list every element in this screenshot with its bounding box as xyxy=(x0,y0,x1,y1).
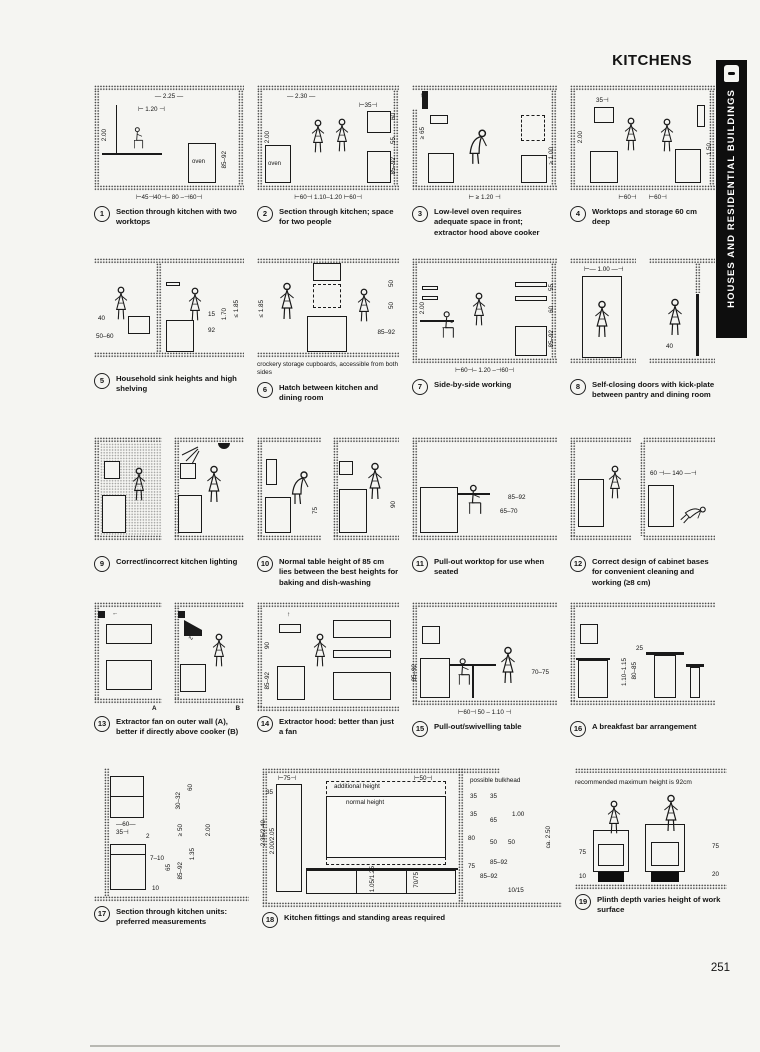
dim-label: 1.05/1.25 xyxy=(370,866,376,892)
figure-caption-row: 15 Pull-out/swivelling table xyxy=(412,721,557,737)
figure-number: 18 xyxy=(262,912,278,928)
base-cabinet xyxy=(110,844,146,890)
wall-cupboard xyxy=(594,107,614,123)
high-cupboard xyxy=(697,105,705,127)
diagram-17: —60— 35⊣ 2 7–10 10 30–32 60 ≥ 50 1.35 2.… xyxy=(94,768,249,902)
figure-number: 19 xyxy=(575,894,591,910)
wall-hatch xyxy=(94,607,100,699)
figure-10: 75 90 10 Normal table height of 85 cm li… xyxy=(257,437,399,588)
figure-caption-row: 1 Section through kitchen with two workt… xyxy=(94,206,244,228)
diagram-3: ↑ ≥ 65 ≥ 1.00 xyxy=(412,85,557,191)
up-arrow-icon: ↑ xyxy=(287,612,290,618)
wall-cupboard xyxy=(422,626,440,644)
figure-caption: Pull-out worktop for use when seated xyxy=(434,556,557,578)
person-figure xyxy=(277,280,297,324)
figure-number: 4 xyxy=(570,206,586,222)
figure-caption: Section through kitchen; space for two p… xyxy=(279,206,399,228)
dim-label: 65 xyxy=(166,864,172,871)
dim-label: 85–92 xyxy=(490,860,508,866)
figure-caption-row: 7 Side-by-side working xyxy=(412,379,557,395)
ceiling-hatch xyxy=(570,437,632,443)
dim-label: 75 xyxy=(712,844,719,850)
figure-caption: Correct design of cabinet bases for conv… xyxy=(592,556,715,588)
dim-label: 75 xyxy=(579,850,586,856)
dim-label: 35 xyxy=(470,812,477,818)
wall-hatch xyxy=(570,90,576,186)
floor-hatch xyxy=(94,896,249,902)
figure-caption-row: 12 Correct design of cabinet bases for c… xyxy=(570,556,715,588)
wall-hatch xyxy=(412,607,418,701)
figure-note: crockery storage cupboards, accessible f… xyxy=(257,361,399,378)
base-cabinet xyxy=(307,316,347,352)
dim-label: ≤ 1.85 xyxy=(234,300,240,317)
scan-artifact-line xyxy=(90,1045,560,1047)
wall-shelf xyxy=(422,296,438,300)
figure-caption-row: 5 Household sink heights and high shelvi… xyxy=(94,373,244,395)
person-figure xyxy=(622,115,640,155)
figure-caption-row: 16 A breakfast bar arrangement xyxy=(570,721,715,737)
cooker-cabinet xyxy=(180,664,206,692)
dim-label: 60 xyxy=(188,784,194,791)
figure-caption-row: 18 Kitchen fittings and standing areas r… xyxy=(262,912,562,928)
dim-label: 85–92 xyxy=(480,874,498,880)
figure-row-1: — 2.25 — ⊢ 1.20 ⊣ 2.00 oven 85–92 ⊢45⊣40… xyxy=(94,85,715,238)
fan-unit xyxy=(178,611,185,618)
bottom-dims: ⊢45⊣40⊣– 80 –⊣60⊣ xyxy=(94,194,244,202)
ceiling-hatch xyxy=(94,258,244,264)
diagram-13: ← A ∿ B xyxy=(94,602,244,712)
extractor-hood xyxy=(279,624,301,633)
figure-caption: Household sink heights and high shelving xyxy=(116,373,244,395)
shelf-line xyxy=(110,796,144,797)
dim-label: 10 xyxy=(579,874,586,880)
dim-label: 80–85 xyxy=(632,662,638,680)
figure-caption: Section through kitchen with two worktop… xyxy=(116,206,244,228)
annotation-label: normal height xyxy=(346,800,384,806)
extractor-hood-shape xyxy=(182,620,204,636)
plinth-recess xyxy=(598,872,624,882)
figure-caption: Normal table height of 85 cm lies betwee… xyxy=(279,556,399,588)
figure-number: 5 xyxy=(94,373,110,389)
dim-label: 35⊣ xyxy=(596,98,609,104)
dim-label: 60 xyxy=(391,113,397,120)
dim-label: 25 xyxy=(636,646,643,652)
figure-caption: Worktops and storage 60 cm deep xyxy=(592,206,715,228)
figure-6: ≤ 1.85 50 50 85–92 crockery storage cupb… xyxy=(257,258,399,403)
figure-caption-row: 3 Low-level oven requires adequate space… xyxy=(412,206,557,238)
floor-hatch xyxy=(257,185,399,191)
dim-label: —60— xyxy=(116,822,136,828)
dim-label: 1.10–1.15 xyxy=(622,658,628,686)
figure-number: 8 xyxy=(570,379,586,395)
dim-label: 85–92 xyxy=(377,330,395,336)
figure-18: ⊢75⊣ ⊢50⊣ 35 2.35/2.40 2.00/2.05 additio… xyxy=(262,768,562,928)
base-cabinet xyxy=(367,151,391,183)
dim-label: 35 xyxy=(490,794,497,800)
figure-number: 11 xyxy=(412,556,428,572)
person-figure-bending xyxy=(464,125,490,167)
person-figure xyxy=(309,119,327,155)
wall-hatch xyxy=(570,607,576,701)
dim-label: 75 xyxy=(468,864,475,870)
ceiling-hatch xyxy=(412,258,557,264)
wall-hatch xyxy=(412,442,418,536)
dim-label: 85–92 xyxy=(508,495,526,501)
figure-note: recommended maximum height is 92cm xyxy=(575,779,727,788)
figure-11: 85–92 65–70 11 Pull-out worktop for use … xyxy=(412,437,557,578)
figure-number: 10 xyxy=(257,556,273,572)
wall-hatch xyxy=(94,90,100,186)
base-cabinet xyxy=(102,495,126,533)
bar-unit xyxy=(654,655,676,698)
diagram-18: ⊢75⊣ ⊢50⊣ 35 2.35/2.40 2.00/2.05 additio… xyxy=(262,768,562,908)
ceiling-hatch xyxy=(174,437,244,443)
dim-label: 85–92 xyxy=(222,151,228,169)
figure-caption: Extractor hood: better than just a fan xyxy=(279,716,399,738)
bottom-dims: ⊢60⊣ 50 – 1.10 ⊣ xyxy=(412,709,557,717)
bottom-dims: ⊢60⊣– 1.20 –⊣60⊣ xyxy=(412,367,557,375)
person-figure xyxy=(665,288,685,348)
person-figure-seated xyxy=(466,481,488,521)
cooker-cabinet xyxy=(277,666,305,700)
person-figure xyxy=(606,461,624,505)
person-figure xyxy=(204,463,224,507)
dim-label: 10/15 xyxy=(508,888,524,894)
oven-door xyxy=(651,842,679,866)
dim-label: 50 xyxy=(389,302,395,309)
dim-label: 70/75 xyxy=(414,872,420,888)
figure-number: 17 xyxy=(94,906,110,922)
high-shelf xyxy=(166,282,180,286)
wall-hatch xyxy=(257,90,263,186)
figure-2: — 2.30 — ⊢35⊣ 60 55 85–92 2.00 oven ⊢60⊣… xyxy=(257,85,399,228)
ceiling-hatch xyxy=(412,602,557,608)
person-figure xyxy=(130,465,148,505)
ceiling-hatch xyxy=(262,768,500,774)
wall-cupboard xyxy=(580,624,598,644)
plinth-recess xyxy=(651,872,679,882)
figure-caption-row: 8 Self-closing doors with kick-plate bet… xyxy=(570,379,715,401)
base-cabinet xyxy=(590,151,618,183)
drawer-line xyxy=(110,854,146,855)
chapter-tab-label: HOUSES AND RESIDENTIAL BUILDINGS xyxy=(726,89,737,308)
wall-shelves xyxy=(266,459,277,485)
bottom-dims: ⊢60⊣ 1.10–1.20 ⊢60⊣ xyxy=(257,194,399,202)
wall-shelf xyxy=(422,286,438,290)
dim-label: 50 xyxy=(389,280,395,287)
base-cabinet xyxy=(420,658,450,698)
figure-caption-row: 2 Section through kitchen; space for two… xyxy=(257,206,399,228)
dim-label: 85–92 xyxy=(265,672,271,690)
dim-label: ≤ 1.85 xyxy=(259,300,265,317)
wall-hatch xyxy=(238,90,244,186)
figure-19: recommended maximum height is 92cm 75 10… xyxy=(575,768,727,915)
wall-units-normal xyxy=(326,796,446,858)
figure-caption-row: 13 Extractor fan on outer wall (A), bett… xyxy=(94,716,244,738)
floor-hatch xyxy=(570,535,632,541)
figure-number: 13 xyxy=(94,716,110,732)
page-title: KITCHENS xyxy=(612,52,692,69)
dim-label: ≥ 65 xyxy=(420,127,426,139)
figure-caption: Low-level oven requires adequate space i… xyxy=(434,206,557,238)
steam-icon: ∿ xyxy=(188,636,193,642)
dim-label: 90 xyxy=(391,501,397,508)
floor-hatch xyxy=(570,358,636,364)
wall-hatch xyxy=(709,90,715,186)
cabinet-with-plinth xyxy=(648,485,674,527)
dim-label: 85–92 xyxy=(178,862,184,880)
dim-label: 55 xyxy=(391,137,397,144)
floor-hatch xyxy=(94,352,244,358)
extractor-hood xyxy=(430,115,448,124)
dim-label: ≥ 50 xyxy=(178,824,184,836)
ceiling-hatch xyxy=(94,602,162,608)
diagram-11: 85–92 65–70 xyxy=(412,437,557,541)
dim-label: 1.35 xyxy=(190,848,196,860)
person-figure xyxy=(132,123,148,155)
ceiling-hatch xyxy=(649,258,715,264)
dim-label: 90 xyxy=(265,642,271,649)
sink-unit xyxy=(339,489,367,533)
base-units xyxy=(333,672,391,700)
figure-caption-row: 6 Hatch between kitchen and dining room xyxy=(257,382,399,404)
window xyxy=(104,461,120,479)
wall-cupboard xyxy=(339,461,353,475)
dim-label: 20 xyxy=(712,872,719,878)
figure-caption: Correct/incorrect kitchen lighting xyxy=(116,556,237,567)
sink-cabinet xyxy=(521,155,547,183)
floor-hatch xyxy=(94,698,162,704)
counter-top xyxy=(576,658,610,660)
figure-number: 2 xyxy=(257,206,273,222)
wall-hatch xyxy=(257,607,263,707)
bottom-dims xyxy=(257,544,399,552)
wall-hatch xyxy=(551,90,557,186)
wall-hatch xyxy=(458,768,464,903)
wall-hatch xyxy=(570,442,576,536)
stool xyxy=(690,667,700,698)
floor-hatch xyxy=(412,700,557,706)
dim-label: 85–92 xyxy=(549,330,555,348)
figure-17: —60— 35⊣ 2 7–10 10 30–32 60 ≥ 50 1.35 2.… xyxy=(94,768,249,928)
oven-door xyxy=(598,844,624,866)
dim-label: ⊢35⊣ xyxy=(359,103,377,109)
dim-label: 1.00 xyxy=(512,812,524,818)
base-cabinet xyxy=(178,495,202,533)
upper-cupboard xyxy=(110,776,144,818)
person-figure xyxy=(333,117,351,155)
fan-unit xyxy=(98,611,105,618)
sink-unit xyxy=(128,316,150,334)
figure-15: 85–92 70–75 ⊢60⊣ 50 – 1.10 ⊣ 15 Pull-out… xyxy=(412,602,557,737)
dim-label: 2.00 xyxy=(578,131,584,143)
person-figure xyxy=(186,286,204,324)
figure-caption-row: 10 Normal table height of 85 cm lies bet… xyxy=(257,556,399,588)
figure-row-2: 40 50–60 15 92 1.70 ≤ 1.85 5 Household s… xyxy=(94,258,715,403)
door-leaf xyxy=(696,294,699,356)
hatch-opening xyxy=(313,284,341,308)
person-figure xyxy=(498,638,518,694)
bottom-dims xyxy=(570,367,715,375)
person-figure xyxy=(355,286,373,326)
dim-label: 30–32 xyxy=(176,792,182,810)
dim-label: 92 xyxy=(208,328,215,334)
diagram-1: — 2.25 — ⊢ 1.20 ⊣ 2.00 oven 85–92 xyxy=(94,85,244,191)
ceiling-hatch xyxy=(412,85,557,91)
unit-divider xyxy=(356,870,357,894)
wall-hatch xyxy=(640,442,646,536)
dim-label: 1.70 xyxy=(222,308,228,320)
dim-label: 75 xyxy=(313,507,319,514)
figure-number: 16 xyxy=(570,721,586,737)
ceiling-hatch xyxy=(333,437,399,443)
ceiling-hatch xyxy=(570,258,636,264)
wall-shelf xyxy=(515,296,547,301)
figure-number: 1 xyxy=(94,206,110,222)
diagram-9 xyxy=(94,437,244,541)
ceiling-lamp-icon xyxy=(218,443,230,449)
cooker-cabinet xyxy=(428,153,454,183)
tall-cupboard-hatched xyxy=(276,784,302,892)
flue-duct xyxy=(422,91,428,109)
base-cabinet xyxy=(515,326,547,356)
figure-14: ↑ 90 85–92 14 Extractor hood: better tha… xyxy=(257,602,399,738)
diagram-6: ≤ 1.85 50 50 85–92 xyxy=(257,258,399,358)
bottom-dims xyxy=(570,709,715,717)
figure-number: 15 xyxy=(412,721,428,737)
base-cabinet xyxy=(675,149,701,183)
ceiling-hatch xyxy=(94,85,244,91)
dim-label: 35⊣ xyxy=(116,830,129,836)
dim-label: 2.00 xyxy=(420,302,426,314)
dim-label: 50 xyxy=(508,840,515,846)
dim-label: 85–92 xyxy=(412,664,418,682)
dim-label: 85–92 xyxy=(391,157,397,175)
floor-hatch xyxy=(257,352,399,358)
mid-shelf xyxy=(333,650,391,658)
figure-caption: Self-closing doors with kick-plate betwe… xyxy=(592,379,715,401)
pot-icon xyxy=(724,65,739,82)
floor-hatch xyxy=(94,185,244,191)
variant-label: A xyxy=(152,706,157,712)
figure-1: — 2.25 — ⊢ 1.20 ⊣ 2.00 oven 85–92 ⊢45⊣40… xyxy=(94,85,244,228)
figure-9: 9 Correct/incorrect kitchen lighting xyxy=(94,437,244,572)
ceiling-hatch xyxy=(257,602,399,608)
dim-label: 50 xyxy=(490,840,497,846)
unit-divider xyxy=(406,870,407,894)
floor-hatch xyxy=(412,535,557,541)
wall-cupboards xyxy=(333,620,391,638)
dim-label: ⊢60⊣ xyxy=(649,194,667,201)
ceiling-hatch xyxy=(412,437,557,443)
diagram-2: — 2.30 — ⊢35⊣ 60 55 85–92 2.00 oven xyxy=(257,85,399,191)
dim-label: — 2.25 — xyxy=(94,94,244,100)
page-number: 251 xyxy=(711,962,730,974)
figure-row-4: ← A ∿ B 13 Extractor fan on outer wall (… xyxy=(94,602,715,738)
floor-hatch xyxy=(174,698,244,704)
wall-hatch xyxy=(695,263,701,293)
figure-number: 12 xyxy=(570,556,586,572)
figure-caption: Kitchen fittings and standing areas requ… xyxy=(284,912,445,923)
person-figure-kneeling xyxy=(671,491,715,535)
dim-label: ≥ 1.00 xyxy=(549,147,555,164)
dim-label: 2.00 xyxy=(265,131,271,143)
wall-hatch xyxy=(412,263,418,359)
dim-label: 2.00 xyxy=(102,129,108,141)
diagram-14: ↑ 90 85–92 xyxy=(257,602,399,712)
bottom-dims: ⊢60⊣ ⊢60⊣ xyxy=(570,194,715,202)
dim-label: 50–60 xyxy=(96,334,114,340)
floor-hatch xyxy=(649,358,715,364)
figure-caption-row: 14 Extractor hood: better than just a fa… xyxy=(257,716,399,738)
figure-caption-row: 17 Section through kitchen units: prefer… xyxy=(94,906,249,928)
diagram-15: 85–92 70–75 xyxy=(412,602,557,706)
bottom-dims xyxy=(570,544,715,552)
figure-caption: Extractor fan on outer wall (A), better … xyxy=(116,716,244,738)
figure-caption: Hatch between kitchen and dining room xyxy=(279,382,399,404)
figure-3: ↑ ≥ 65 ≥ 1.00 ⊢ ≥ 1.20 ⊣ 3 Low-level ove… xyxy=(412,85,557,238)
floor-hatch xyxy=(94,535,162,541)
dim-label: 7–10 xyxy=(150,856,164,862)
figure-16: 25 1.10–1.15 80–85 16 A breakfast bar ar… xyxy=(570,602,715,737)
dim-label: ⊢ 1.20 ⊣ xyxy=(138,107,165,113)
wall-shelf xyxy=(515,282,547,287)
dim-label: ⊢75⊣ xyxy=(278,776,296,782)
floor-hatch xyxy=(257,535,321,541)
figure-7: 2.00 55 60 85–92 ⊢60⊣– 1.20 –⊣60⊣ 7 Side… xyxy=(412,258,557,395)
dim-label: 2.00/2.05 xyxy=(270,828,276,854)
ceiling-hatch xyxy=(257,85,399,91)
dim-label: 60 xyxy=(549,306,555,313)
figure-number: 3 xyxy=(412,206,428,222)
dim-label: 2.00 xyxy=(206,824,212,836)
diagram-5: 40 50–60 15 92 1.70 ≤ 1.85 xyxy=(94,258,244,358)
base-units xyxy=(106,660,152,690)
figure-caption: A breakfast bar arrangement xyxy=(592,721,696,732)
person-figure xyxy=(210,630,228,672)
figure-caption-row: 4 Worktops and storage 60 cm deep xyxy=(570,206,715,228)
dim-label: ca. 2.50 xyxy=(546,826,552,848)
bottom-dims xyxy=(412,544,557,552)
diagram-4: 35⊣ 2.00 1.50 xyxy=(570,85,715,191)
base-cabinet xyxy=(578,660,608,698)
dim-label: 10 xyxy=(152,886,159,892)
dim-label: 40 xyxy=(98,316,105,322)
person-figure xyxy=(658,117,676,155)
floor-hatch xyxy=(570,700,715,706)
person-figure xyxy=(592,290,612,350)
table-unit xyxy=(166,320,194,352)
dim-label: 80 xyxy=(468,836,475,842)
dim-label: 2 xyxy=(146,834,150,840)
diagram-19: 75 10 75 20 xyxy=(575,792,727,890)
variant-label: B xyxy=(235,706,240,712)
diagram-12: 60 ⊣— 140 —⊣ xyxy=(570,437,715,541)
figure-number: 9 xyxy=(94,556,110,572)
figure-caption: Plinth depth varies height of work surfa… xyxy=(597,894,727,916)
dim-label: 15 xyxy=(208,312,215,318)
person-figure-seated xyxy=(440,308,460,344)
ceiling-hatch xyxy=(643,437,715,443)
figure-caption: Side-by-side working xyxy=(434,379,511,390)
figure-caption: Pull-out/swivelling table xyxy=(434,721,522,732)
oven-label: oven xyxy=(268,161,281,167)
ceiling-hatch xyxy=(570,85,715,91)
diagram-8: ⊢— 1.00 —⊣ 40 xyxy=(570,258,715,364)
figure-row-5: —60— 35⊣ 2 7–10 10 30–32 60 ≥ 50 1.35 2.… xyxy=(94,768,727,928)
dim-label: 60 ⊣— 140 —⊣ xyxy=(650,471,696,477)
dim-label: 55 xyxy=(549,284,555,291)
